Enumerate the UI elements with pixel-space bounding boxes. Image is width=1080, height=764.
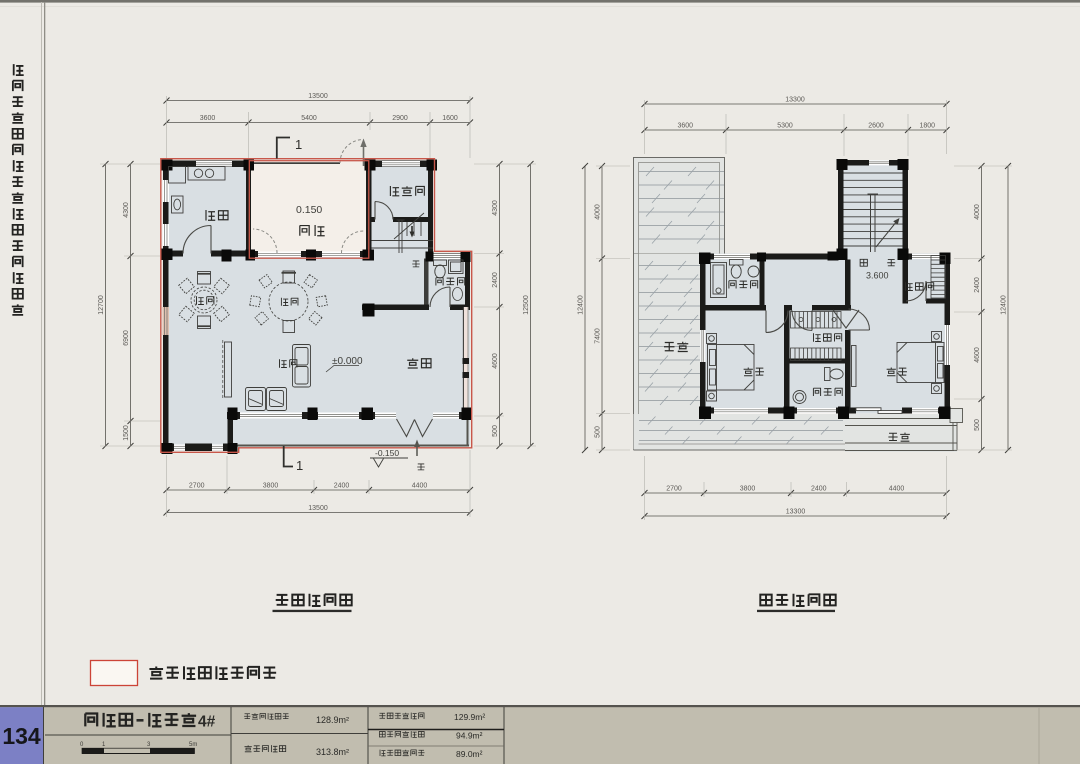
svg-text:2400: 2400 bbox=[974, 277, 981, 293]
svg-text:12400: 12400 bbox=[578, 295, 585, 315]
svg-text:4600: 4600 bbox=[492, 353, 499, 369]
svg-text:94.9m²: 94.9m² bbox=[456, 731, 483, 741]
svg-text:1500: 1500 bbox=[123, 425, 130, 441]
svg-text:13300: 13300 bbox=[786, 509, 806, 516]
svg-text:129.9m²: 129.9m² bbox=[454, 712, 485, 722]
svg-text:3600: 3600 bbox=[678, 123, 694, 130]
svg-text:2400: 2400 bbox=[811, 486, 827, 493]
svg-text:4300: 4300 bbox=[123, 202, 130, 218]
svg-text:-0.150: -0.150 bbox=[375, 448, 399, 458]
svg-text:13500: 13500 bbox=[308, 505, 328, 512]
svg-text:12700: 12700 bbox=[98, 295, 105, 315]
svg-text:3.600: 3.600 bbox=[866, 271, 889, 281]
svg-text:89.0m²: 89.0m² bbox=[456, 749, 483, 759]
svg-text:4400: 4400 bbox=[889, 486, 905, 493]
svg-text:13500: 13500 bbox=[308, 93, 328, 100]
svg-text:2700: 2700 bbox=[189, 483, 205, 490]
svg-text:4600: 4600 bbox=[974, 347, 981, 363]
svg-text:2700: 2700 bbox=[666, 486, 682, 493]
svg-text:4300: 4300 bbox=[492, 200, 499, 216]
svg-text:2400: 2400 bbox=[334, 483, 350, 490]
svg-text:134: 134 bbox=[2, 723, 41, 749]
svg-text:500: 500 bbox=[492, 425, 499, 437]
svg-text:3800: 3800 bbox=[263, 483, 279, 490]
svg-text:4000: 4000 bbox=[595, 204, 602, 220]
svg-text:6900: 6900 bbox=[123, 330, 130, 346]
svg-text:5400: 5400 bbox=[301, 115, 317, 122]
svg-text:0.150: 0.150 bbox=[296, 204, 322, 216]
svg-text:5m: 5m bbox=[189, 742, 197, 748]
svg-text:2900: 2900 bbox=[392, 115, 408, 122]
svg-text:1: 1 bbox=[296, 458, 303, 473]
svg-text:3600: 3600 bbox=[200, 115, 216, 122]
svg-text:4000: 4000 bbox=[974, 204, 981, 220]
svg-text:12400: 12400 bbox=[1001, 295, 1008, 315]
svg-text:3800: 3800 bbox=[740, 486, 756, 493]
svg-text:7400: 7400 bbox=[595, 328, 602, 344]
svg-text:13300: 13300 bbox=[785, 97, 805, 104]
svg-text:500: 500 bbox=[595, 426, 602, 438]
svg-text:500: 500 bbox=[974, 419, 981, 431]
svg-text:1: 1 bbox=[295, 137, 302, 152]
svg-text:1800: 1800 bbox=[920, 123, 936, 130]
svg-text:4400: 4400 bbox=[412, 483, 428, 490]
svg-text:5300: 5300 bbox=[777, 123, 793, 130]
svg-text:128.9m²: 128.9m² bbox=[316, 715, 349, 725]
svg-text:1600: 1600 bbox=[442, 115, 458, 122]
svg-text:313.8m²: 313.8m² bbox=[316, 747, 349, 757]
svg-text:2400: 2400 bbox=[492, 272, 499, 288]
svg-text:4#: 4# bbox=[198, 714, 216, 731]
svg-text:12500: 12500 bbox=[523, 295, 530, 315]
svg-text:2600: 2600 bbox=[868, 123, 884, 130]
